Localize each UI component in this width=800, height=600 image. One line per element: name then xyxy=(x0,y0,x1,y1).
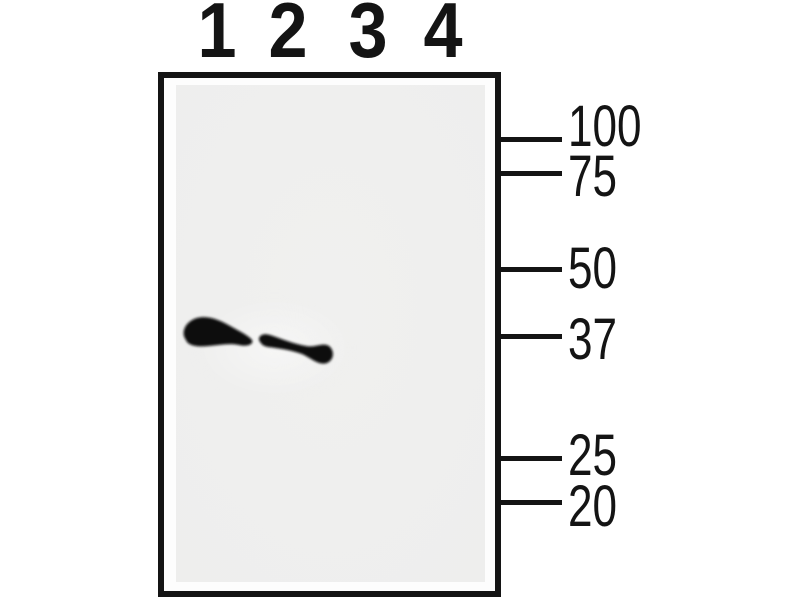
marker-tick-100 xyxy=(499,137,562,142)
marker-tick-50 xyxy=(499,267,562,272)
marker-tick-25 xyxy=(499,456,562,461)
marker-label-50: 50 xyxy=(568,240,617,298)
marker-label-37: 37 xyxy=(568,311,617,369)
lane-label-4: 4 xyxy=(423,0,462,69)
lane-label-3: 3 xyxy=(348,0,387,69)
lane-label-2: 2 xyxy=(268,0,307,69)
marker-tick-37 xyxy=(499,334,562,339)
blot-membrane-frame xyxy=(158,72,501,597)
marker-label-75: 75 xyxy=(568,148,617,206)
band-region-glow xyxy=(192,295,357,400)
marker-tick-20 xyxy=(499,500,562,505)
lane-label-1: 1 xyxy=(197,0,236,69)
gel-membrane xyxy=(176,85,485,582)
western-blot-figure: 1 2 3 4 100 75 50 37 25 20 xyxy=(0,0,800,600)
marker-label-20: 20 xyxy=(568,478,617,536)
marker-tick-75 xyxy=(499,171,562,176)
